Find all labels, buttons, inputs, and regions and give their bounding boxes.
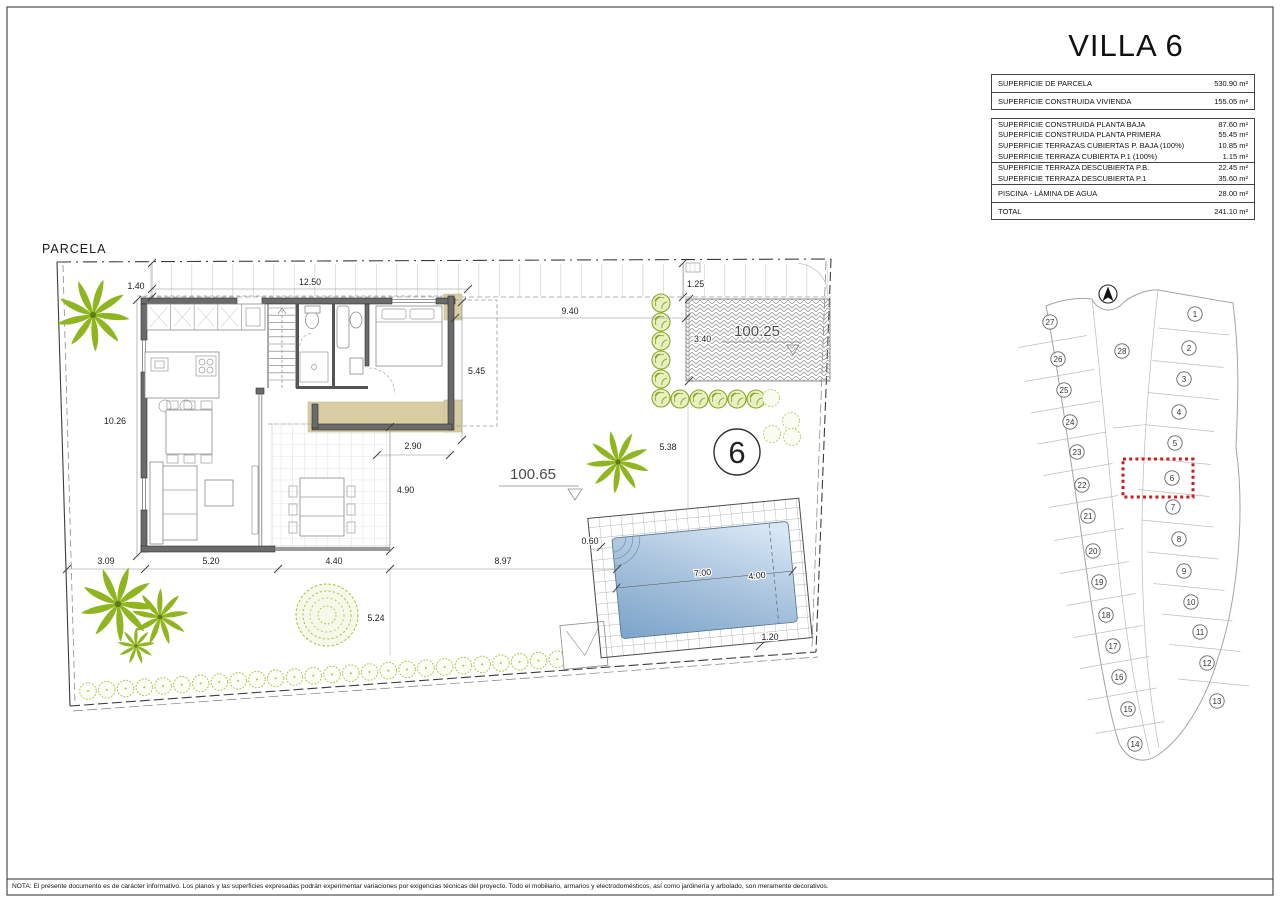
area-label: SUPERFICIE TERRAZA DESCUBIERTA P.B.	[998, 164, 1149, 172]
site-map-plot: 12	[1200, 656, 1214, 670]
bush-icon	[652, 351, 670, 369]
toilet	[306, 312, 319, 329]
site-map-plot: 3	[1177, 372, 1191, 386]
bush-circle	[652, 332, 670, 350]
toilet	[350, 312, 362, 328]
hedge-bush-dot	[387, 670, 389, 672]
site-map-plot-number: 25	[1060, 386, 1069, 395]
site-boundary	[1046, 290, 1240, 760]
plot-divider	[1067, 594, 1136, 606]
site-map-plot: 25	[1057, 383, 1071, 397]
site-map-plot: 9	[1177, 564, 1191, 578]
dim-terrace-depth: 4.90	[397, 485, 414, 495]
bush-circle	[652, 389, 670, 407]
dim-porch-width: 2.90	[404, 441, 421, 451]
site-map-plot-number: 12	[1203, 659, 1212, 668]
dim-drive-top: 1.25	[687, 279, 704, 289]
hedge-bush-dot	[162, 685, 164, 687]
hedge-bush-dot	[125, 687, 127, 689]
kitchen	[145, 304, 265, 412]
areas-table-row: SUPERFICIE CONSTRUIDA PLANTA PRIMERA55.4…	[992, 130, 1254, 141]
site-map-plot: 16	[1112, 670, 1126, 684]
hedge-bush-dot	[293, 676, 295, 678]
site-map-plot: 2	[1182, 341, 1196, 355]
area-label: SUPERFICIE TERRAZA CUBIERTA P.1 (100%)	[998, 153, 1157, 161]
areas-table-section: SUPERFICIE TERRAZA DESCUBIERTA P.B.22.45…	[991, 162, 1255, 185]
site-map-plot-number: 24	[1066, 418, 1075, 427]
bush-circle	[652, 370, 670, 388]
dim-pool-length: 7.00	[694, 567, 712, 579]
level-arrow-icon	[568, 489, 582, 500]
plot-number: 6	[728, 435, 745, 470]
bush-icon	[652, 294, 670, 312]
bush-circle	[652, 294, 670, 312]
areas-table-section: TOTAL241.10 m²	[991, 202, 1255, 221]
site-map-plot-number: 19	[1095, 578, 1104, 587]
stairs	[268, 304, 296, 388]
site-map-plot: 4	[1172, 405, 1186, 419]
site-map-plot: 21	[1081, 509, 1095, 523]
areas-table-row: PISCINA - LÁMINA DE AGUA28.00 m²	[992, 185, 1254, 202]
area-label: SUPERFICIE TERRAZA DESCUBIERTA P.1	[998, 175, 1146, 183]
site-map-plot-number: 20	[1089, 547, 1098, 556]
plot-divider	[1154, 584, 1225, 591]
north-arrow-icon	[1099, 285, 1117, 303]
scribble-bush	[296, 584, 358, 646]
area-label: SUPERFICIE TERRAZAS CUBIERTAS P. BAJA (1…	[998, 142, 1184, 150]
hedge-bush-dot	[237, 680, 239, 682]
disclaimer-note: NOTA: El presente documento es de caráct…	[12, 883, 1268, 890]
areas-table-row: TOTAL241.10 m²	[992, 203, 1254, 220]
site-map-plot-number: 11	[1196, 628, 1205, 637]
light-bush-icon	[784, 429, 801, 446]
dim-left-setback: 3.09	[97, 556, 114, 566]
bush-icon	[652, 370, 670, 388]
site-map-plot-number: 18	[1102, 611, 1111, 620]
hedge-bush-dot	[444, 666, 446, 668]
plot-divider	[1038, 432, 1107, 444]
site-map-plot: 5	[1168, 436, 1182, 450]
hedge-bush-dot	[200, 682, 202, 684]
site-map-plot-number: 27	[1046, 318, 1055, 327]
hedge-bush-dot	[369, 671, 371, 673]
site-map-plot-number: 13	[1213, 697, 1222, 706]
hedge-bush-dot	[87, 690, 89, 692]
plot-divider	[1148, 552, 1219, 559]
site-map-plot: 20	[1086, 544, 1100, 558]
area-label: SUPERFICIE DE PARCELA	[998, 80, 1092, 88]
bush-circle	[671, 390, 689, 408]
area-label: SUPERFICIE CONSTRUIDA PLANTA BAJA	[998, 121, 1145, 129]
hedge-bush-dot	[425, 667, 427, 669]
areas-table-section: SUPERFICIE CONSTRUIDA VIVIENDA155.05 m²	[991, 92, 1255, 111]
site-map-plot-number: 23	[1073, 448, 1082, 457]
terrace-step	[275, 547, 390, 551]
area-label: TOTAL	[998, 208, 1021, 216]
areas-table-row: SUPERFICIE TERRAZA DESCUBIERTA P.B.22.45…	[992, 163, 1254, 174]
site-map-plot-number: 16	[1115, 673, 1124, 682]
site-map-plot-number: 8	[1177, 535, 1182, 544]
area-label: SUPERFICIE CONSTRUIDA PLANTA PRIMERA	[998, 131, 1161, 139]
area-value: 530.90 m²	[1206, 80, 1248, 88]
site-map-plot-number: 2	[1187, 344, 1192, 353]
dim-strip-width: 12.50	[299, 277, 321, 287]
site-map-plot: 24	[1063, 415, 1077, 429]
plot-divider	[1044, 464, 1113, 476]
plot-divider	[1080, 657, 1149, 669]
bush-icon	[652, 332, 670, 350]
site-map-plot-number: 6	[1170, 474, 1175, 483]
shower	[300, 352, 328, 382]
site-map-plot: 28	[1115, 344, 1129, 358]
site-map-plot: 19	[1092, 575, 1106, 589]
site-map-plot: 26	[1051, 352, 1065, 366]
hedge-bush-dot	[462, 665, 464, 667]
dim-terrace-width: 4.40	[325, 556, 342, 566]
page-title: VILLA 6	[988, 28, 1264, 64]
areas-table-section: SUPERFICIE CONSTRUIDA PLANTA BAJA87.60 m…	[991, 118, 1255, 163]
site-map-plot-number: 10	[1187, 598, 1196, 607]
house	[137, 294, 497, 552]
plot-divider	[1074, 626, 1143, 638]
coffee-table	[205, 480, 233, 506]
plot-divider	[1088, 688, 1157, 700]
sink	[350, 358, 363, 374]
plot-divider	[1142, 520, 1213, 527]
site-map-plot: 22	[1075, 478, 1089, 492]
hedge-bush-dot	[331, 674, 333, 676]
site-map-plot: 11	[1193, 625, 1207, 639]
bathroom-2	[337, 306, 363, 374]
level-label-garden: 100.65	[510, 466, 556, 483]
site-map-plot-number: 5	[1173, 439, 1178, 448]
site-map-plot-number: 1	[1193, 310, 1198, 319]
hedge-bush-dot	[312, 675, 314, 677]
site-map-plot-number: 22	[1078, 481, 1087, 490]
bush-icon	[728, 390, 746, 408]
bed	[376, 306, 442, 366]
site-map-plot: 13	[1210, 694, 1224, 708]
hedge-bush-dot	[406, 668, 408, 670]
pool: 7.00 4.00	[550, 498, 813, 669]
site-map-plot-number: 7	[1171, 503, 1176, 512]
hedge-bush-dot	[537, 660, 539, 662]
parcel-plan: PARCELA 100.25 10	[42, 242, 831, 711]
plot-divider	[1170, 645, 1241, 652]
dim-bedroom-depth: 5.45	[468, 366, 485, 376]
hedge-bush-dot	[350, 672, 352, 674]
dining-area	[166, 401, 212, 463]
drawing-sheet: PARCELA 100.25 10	[0, 0, 1280, 905]
dim-gap-to-drive: 9.40	[561, 306, 578, 316]
hedge-bush-dot	[500, 662, 502, 664]
plot-divider	[1096, 722, 1165, 734]
plot-divider	[1153, 361, 1224, 368]
sofa	[150, 462, 163, 544]
hedge-bush-dot	[106, 689, 108, 691]
hedge-bush-dot	[481, 663, 483, 665]
plot-divider	[1158, 328, 1229, 335]
bush-icon	[671, 390, 689, 408]
site-map-plot: 8	[1172, 532, 1186, 546]
bush-circle	[709, 390, 727, 408]
areas-table-row: SUPERFICIE CONSTRUIDA VIVIENDA155.05 m²	[992, 93, 1254, 110]
tv-bench	[252, 466, 258, 534]
drain-grate	[686, 263, 700, 272]
dim-house-depth: 10.26	[104, 416, 126, 426]
plot-number-badge: 6	[714, 429, 760, 475]
plot-divider	[1162, 614, 1233, 621]
dim-garden-width: 8.97	[494, 556, 511, 566]
site-map-plot: 14	[1128, 737, 1142, 751]
bathroom-1	[300, 306, 328, 382]
site-plot-dividers	[1018, 328, 1249, 734]
site-map-plot-number: 9	[1182, 567, 1187, 576]
dim-pool-width: 4.00	[748, 570, 766, 582]
bush-icon	[690, 390, 708, 408]
areas-table-section: PISCINA - LÁMINA DE AGUA28.00 m²	[991, 184, 1255, 203]
site-map-plot: 17	[1106, 639, 1120, 653]
areas-table-row: SUPERFICIE TERRAZAS CUBIERTAS P. BAJA (1…	[992, 140, 1254, 151]
light-bush-icon	[783, 413, 800, 430]
site-map-plot-number: 21	[1084, 512, 1093, 521]
site-map-plot-number: 3	[1182, 375, 1187, 384]
site-map-plot-number: 17	[1109, 642, 1118, 651]
bathtub	[337, 306, 349, 348]
bush-circle	[690, 390, 708, 408]
site-map-plot: 1	[1188, 307, 1202, 321]
site-map-plot-number: 15	[1124, 705, 1133, 714]
site-map-plot-number: 28	[1118, 347, 1127, 356]
site-map-plot: 18	[1099, 608, 1113, 622]
areas-table-row: SUPERFICIE TERRAZA DESCUBIERTA P.135.60 …	[992, 173, 1254, 184]
plot-divider	[1031, 401, 1100, 413]
level-label-driveway: 100.25	[734, 323, 780, 340]
area-value: 10.85 m²	[1210, 142, 1248, 150]
bush-circle	[728, 390, 746, 408]
hedge-bush-dot	[256, 679, 258, 681]
hedge-bush-dot	[143, 686, 145, 688]
bedroom	[376, 306, 442, 366]
dim-drive-height: 3.40	[694, 334, 711, 344]
site-map-plot-number: 4	[1177, 408, 1182, 417]
plot-divider	[1143, 425, 1214, 432]
area-value: 155.05 m²	[1206, 98, 1248, 106]
hedge-bush-dot	[218, 681, 220, 683]
site-map-plot: 10	[1184, 595, 1198, 609]
area-value: 35.60 m²	[1210, 175, 1248, 183]
hedge-bush-dot	[556, 658, 558, 660]
areas-table-row: SUPERFICIE DE PARCELA530.90 m²	[992, 75, 1254, 92]
plot-divider	[1049, 496, 1118, 508]
site-map-plot: 27	[1043, 315, 1057, 329]
area-value: 22.45 m²	[1210, 164, 1248, 172]
living-room	[150, 462, 258, 544]
dim-plot-side: 5.38	[659, 442, 676, 452]
site-map-plot: 15	[1121, 702, 1135, 716]
light-bush-icon	[764, 426, 781, 443]
area-value: 55.45 m²	[1210, 131, 1248, 139]
area-value: 87.60 m²	[1210, 121, 1248, 129]
dim-pool-edge: 1.20	[761, 632, 778, 642]
hedge-bush-dot	[519, 661, 521, 663]
bush-circle	[652, 313, 670, 331]
area-label: PISCINA - LÁMINA DE AGUA	[998, 190, 1097, 198]
area-label: SUPERFICIE CONSTRUIDA VIVIENDA	[998, 98, 1131, 106]
dining-table	[166, 410, 212, 454]
bush-icon	[652, 313, 670, 331]
plot-divider	[1025, 370, 1094, 382]
site-map-plot-number: 26	[1054, 355, 1063, 364]
site-map: 1234567891011121314151617181920212223242…	[1018, 285, 1249, 760]
light-bush-icon	[763, 390, 780, 407]
site-map-plot: 6	[1165, 471, 1179, 485]
area-value: 241.10 m²	[1206, 208, 1248, 216]
bush-icon	[709, 390, 727, 408]
bush-icon	[652, 389, 670, 407]
parcela-label: PARCELA	[42, 242, 106, 256]
areas-table-section: SUPERFICIE DE PARCELA530.90 m²	[991, 74, 1255, 93]
dim-house-width: 5.20	[202, 556, 219, 566]
area-value: 28.00 m²	[1210, 190, 1248, 198]
site-map-plot-number: 14	[1131, 740, 1140, 749]
site-map-plot: 23	[1070, 445, 1084, 459]
plot-divider	[1178, 679, 1249, 686]
hedge-bush-dot	[181, 684, 183, 686]
dim-pool-offset: 0.60	[581, 536, 598, 546]
plot-divider	[1139, 490, 1210, 497]
areas-table-row: SUPERFICIE TERRAZA CUBIERTA P.1 (100%)1.…	[992, 151, 1254, 162]
pavement-strip	[141, 263, 831, 297]
hedge-bush-dot	[275, 677, 277, 679]
kitchen-island	[145, 352, 219, 398]
areas-table-row: SUPERFICIE CONSTRUIDA PLANTA BAJA87.60 m…	[992, 119, 1254, 130]
site-map-plot: 7	[1166, 500, 1180, 514]
bush-circle	[652, 351, 670, 369]
dim-strip-offset: 1.40	[127, 281, 144, 291]
area-value: 1.15 m²	[1215, 153, 1248, 161]
plot-divider	[1148, 393, 1219, 400]
dim-garden-depth: 5.24	[367, 613, 384, 623]
plot-divider	[1055, 529, 1124, 541]
areas-table: SUPERFICIE DE PARCELA530.90 m²SUPERFICIE…	[991, 75, 1255, 220]
